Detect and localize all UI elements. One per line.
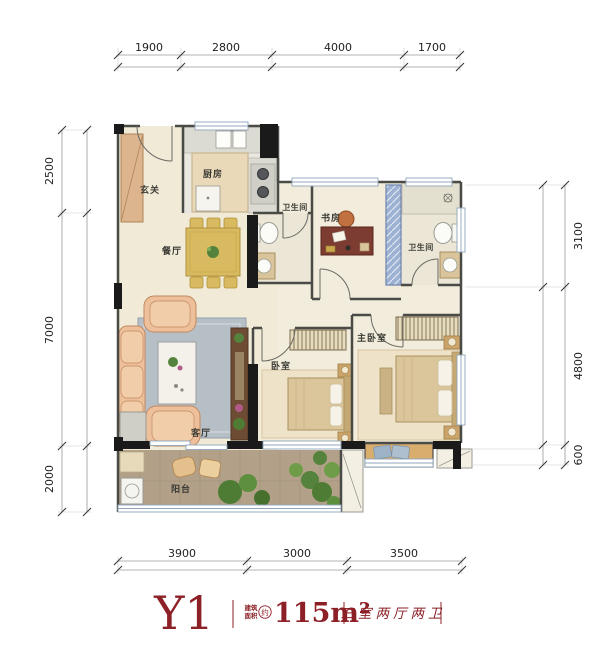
bath1-toilet (260, 223, 278, 244)
dim-top-2: 2800 (212, 41, 240, 54)
label-entry: 玄关 (140, 184, 160, 196)
bay-window-seat (365, 443, 433, 460)
master-bench (380, 368, 392, 414)
label-study: 书房 (321, 212, 341, 224)
dim-bottom-1: 3900 (168, 547, 196, 560)
label-living: 客厅 (190, 427, 211, 439)
title-block: Y1 建筑 面积 约 115m² 三室两厅两卫 (153, 586, 445, 640)
floor-plan: 1900 2800 4000 1700 3900 3000 3500 2500 … (0, 0, 601, 650)
label-dining: 餐厅 (161, 245, 182, 257)
dim-left-2: 7000 (43, 316, 56, 344)
glass-strip (386, 185, 401, 285)
bath2-toilet (434, 223, 452, 244)
dim-left-1: 2500 (43, 157, 56, 185)
dim-right-3: 600 (572, 445, 585, 466)
balcony-washer (121, 478, 143, 504)
balcony-slider-panel-2 (186, 445, 227, 450)
label-kitchen: 厨房 (203, 168, 223, 180)
area-label-bottom: 面积 (245, 611, 259, 620)
kitchen-stove (251, 164, 275, 204)
dining-set (186, 218, 240, 288)
bedroom-wardrobe (290, 330, 346, 350)
layout-tags: 三室两厅两卫 (341, 606, 446, 622)
dim-left-3: 2000 (43, 465, 56, 493)
balcony-slider-panel-1 (150, 441, 190, 446)
entry-shoe-cabinet (121, 134, 143, 222)
area-circle-char: 约 (261, 607, 269, 617)
label-balcony: 阳台 (171, 483, 191, 495)
unit-name: Y1 (153, 586, 214, 640)
dim-right-1: 3100 (572, 222, 585, 250)
dim-top-1: 1900 (135, 41, 163, 54)
area-label-top: 建筑 (244, 603, 259, 612)
coffee-table (158, 342, 196, 404)
dim-bottom-3: 3500 (390, 547, 418, 560)
dim-top-4: 1700 (418, 41, 446, 54)
dim-bottom-2: 3000 (283, 547, 311, 560)
kitchen-sink (216, 131, 231, 148)
dim-top-3: 4000 (324, 41, 352, 54)
living-set (119, 296, 248, 446)
label-master: 主卧室 (357, 332, 387, 344)
balcony-chair-2 (199, 458, 222, 478)
side-table (120, 412, 146, 442)
label-bath1: 卫生间 (282, 202, 308, 212)
label-bath2: 卫生间 (408, 242, 434, 252)
label-bedroom: 卧室 (271, 360, 291, 372)
bath2-shower (402, 183, 460, 214)
dim-right-2: 4800 (572, 352, 585, 380)
balcony-counter (120, 452, 144, 472)
